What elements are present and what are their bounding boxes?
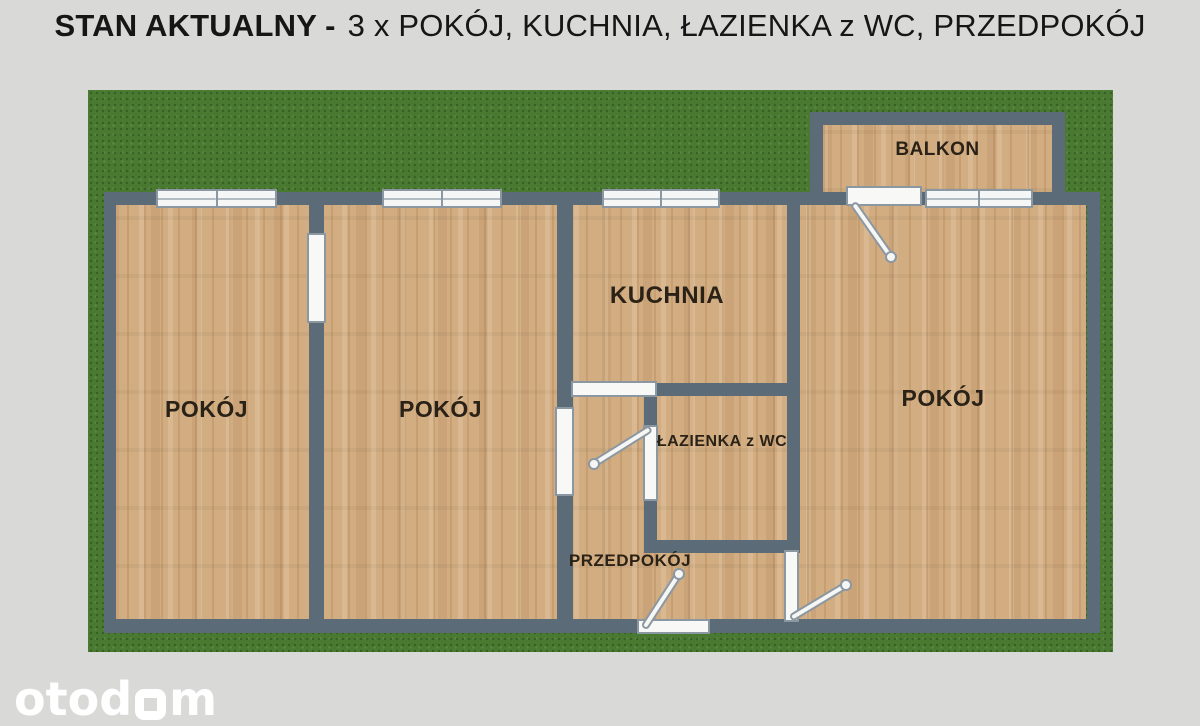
wall-right [1087,192,1100,633]
window-pane [980,191,1031,206]
wall-bottom [104,619,1100,633]
window-room3 [925,189,1033,208]
window-pane [604,191,662,206]
door-room1-room2 [307,233,326,323]
window-kitchen [602,189,720,208]
room-label-kuchnia: KUCHNIA [560,282,774,310]
wall-kitchen-bottom [655,383,800,396]
window-pane [218,191,276,206]
door-balcony-swing [885,251,897,263]
room-label-przedpokoj: PRZEDPOKÓJ [560,551,700,571]
title-room-list: 3 x POKÓJ, KUCHNIA, ŁAZIENKA z WC, PRZED… [348,8,1146,43]
otodom-logo-suffix: m [169,676,217,722]
otodom-logo: otodm [14,676,217,722]
balcony-wall-right [1052,112,1065,192]
page-title: STAN AKTUALNY-3 x POKÓJ, KUCHNIA, ŁAZIEN… [0,8,1200,44]
window-room1 [156,189,277,208]
window-pane [384,191,443,206]
room-label-pokoj-1: POKÓJ [110,396,303,423]
window-pane [158,191,218,206]
room-label-pokoj-2: POKÓJ [324,396,557,423]
window-pane [927,191,980,206]
floor-plan-image: STAN AKTUALNY-3 x POKÓJ, KUCHNIA, ŁAZIEN… [0,0,1200,720]
door-room2-hall [555,407,574,496]
doorway-kitchen [571,381,657,397]
balcony-wall-top [810,112,1065,125]
title-separator: - [325,8,336,43]
window-pane [443,191,500,206]
window-pane [662,191,718,206]
room-label-lazienka: ŁAZIENKA z WC [644,433,800,451]
title-status: STAN AKTUALNY [54,8,317,43]
square-o-glyph [135,689,166,720]
door-bathroom-swing [588,458,600,470]
door-room3-swing [840,579,852,591]
room-label-pokoj-3: POKÓJ [800,385,1086,412]
room-label-balkon: BALKON [823,139,1052,161]
wall-kitchen-room3 [787,192,800,553]
window-room2 [382,189,502,208]
otodom-logo-prefix: otod [14,676,132,722]
